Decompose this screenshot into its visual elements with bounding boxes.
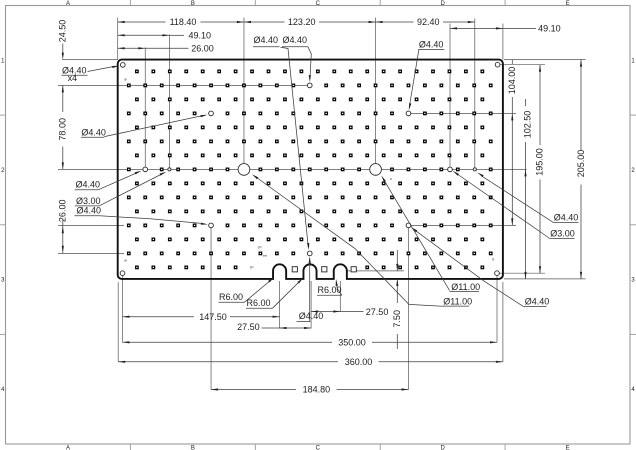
svg-text:3: 3: [631, 278, 635, 284]
svg-text:92.40: 92.40: [417, 17, 440, 27]
svg-text:C: C: [316, 1, 321, 7]
svg-text:A: A: [66, 1, 70, 7]
svg-text:R6.00: R6.00: [219, 292, 243, 302]
svg-text:Ø4.40: Ø4.40: [81, 127, 106, 137]
svg-text:104.00: 104.00: [507, 67, 517, 95]
svg-text:Ø4.40: Ø4.40: [76, 180, 101, 190]
svg-text:Ø4.40: Ø4.40: [525, 297, 550, 307]
svg-text:123.20: 123.20: [288, 17, 316, 27]
svg-text:26.00: 26.00: [57, 200, 67, 223]
svg-text:118.40: 118.40: [170, 17, 197, 27]
svg-text:360.00: 360.00: [345, 357, 373, 367]
svg-text:4: 4: [1, 387, 5, 393]
svg-text:26.00: 26.00: [191, 43, 214, 53]
svg-text:Ø4.40: Ø4.40: [77, 206, 102, 216]
svg-text:49.10: 49.10: [538, 24, 561, 34]
svg-text:Ø4.40: Ø4.40: [554, 212, 579, 222]
svg-text:ö=: ö=: [258, 245, 262, 249]
svg-text:2: 2: [631, 168, 635, 174]
svg-text:205.00: 205.00: [576, 150, 586, 178]
svg-text:7.50: 7.50: [392, 310, 402, 328]
svg-text:o: o: [390, 177, 392, 181]
svg-text:2: 2: [1, 168, 5, 174]
svg-text:¤≡: ¤≡: [263, 254, 267, 258]
svg-text:27.50: 27.50: [237, 322, 260, 332]
svg-text:B: B: [191, 1, 195, 7]
svg-text:ø: ø: [124, 259, 127, 263]
svg-text:D: D: [441, 1, 446, 7]
svg-text:1: 1: [631, 58, 635, 64]
svg-text:184.80: 184.80: [303, 385, 331, 395]
svg-text:0: 0: [492, 258, 494, 262]
svg-text:Ø4.40: Ø4.40: [299, 311, 324, 321]
svg-text:Ø4.40: Ø4.40: [283, 35, 308, 45]
svg-text:3: 3: [1, 278, 5, 284]
svg-text:Ø3.00: Ø3.00: [550, 229, 575, 239]
svg-text:195.00: 195.00: [535, 148, 545, 176]
svg-text:C: C: [316, 445, 321, 450]
svg-text:E: E: [566, 1, 570, 7]
svg-text:ø: ø: [124, 78, 127, 82]
svg-text:102.50: 102.50: [523, 111, 533, 139]
svg-text:ö=: ö=: [250, 265, 254, 269]
svg-text:78.00: 78.00: [57, 118, 67, 141]
svg-text:x4: x4: [68, 73, 78, 83]
svg-text:Ø3.00: Ø3.00: [76, 196, 101, 206]
svg-text:Ø11.00: Ø11.00: [451, 282, 480, 292]
svg-text:Ø11.00: Ø11.00: [443, 296, 472, 306]
svg-text:49.10: 49.10: [189, 31, 212, 41]
svg-text:4: 4: [631, 387, 635, 393]
svg-text:D: D: [441, 445, 446, 450]
svg-text:R6.00: R6.00: [247, 298, 271, 308]
svg-text:27.50: 27.50: [366, 307, 389, 317]
svg-text:1: 1: [1, 58, 5, 64]
svg-text:147.50: 147.50: [199, 312, 227, 322]
svg-text:Ø4.40: Ø4.40: [419, 39, 444, 49]
svg-text:E: E: [566, 445, 570, 450]
svg-text:24.50: 24.50: [57, 20, 67, 43]
svg-text:350.00: 350.00: [338, 338, 366, 348]
svg-text:A: A: [66, 445, 70, 450]
svg-text:B: B: [191, 445, 195, 450]
svg-text:Ø4.40: Ø4.40: [254, 35, 279, 45]
